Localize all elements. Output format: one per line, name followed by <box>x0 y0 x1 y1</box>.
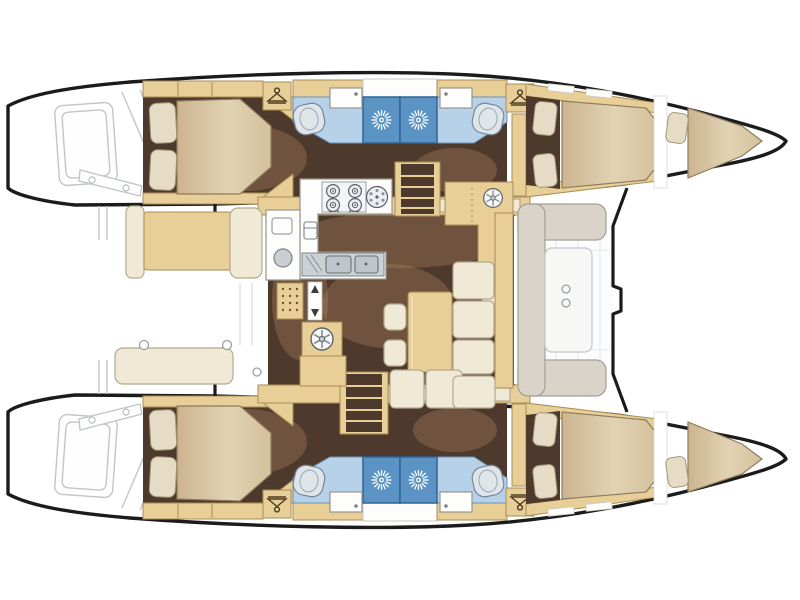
vent-wheel-icon <box>484 189 503 208</box>
stool <box>384 304 406 330</box>
floor-plan-canvas <box>0 0 800 600</box>
washing-machine-icon <box>302 322 342 356</box>
companionway-stairs-top <box>395 162 440 216</box>
round-hob-icon <box>367 187 388 208</box>
cockpit-bench-bottom <box>115 341 261 385</box>
hull-bottom <box>8 395 786 527</box>
cockpit-front-wall <box>613 188 627 412</box>
forward-cockpit <box>514 188 627 412</box>
double-sink-icon <box>302 253 384 276</box>
galley-cabinet <box>300 356 346 386</box>
catamaran-floor-plan <box>0 0 800 600</box>
dinette-table <box>408 292 452 372</box>
dotted-doormat <box>277 283 303 319</box>
stool <box>384 340 406 366</box>
deck-hook <box>140 341 149 350</box>
dinghy-davit-lines <box>99 206 107 394</box>
fridge-icon <box>304 222 317 239</box>
salon <box>258 162 530 434</box>
deck-hook <box>223 341 232 350</box>
cockpit-wet-bar <box>266 210 300 280</box>
deck-hook <box>253 368 261 376</box>
cockpit-bench-top <box>126 206 262 278</box>
companionway-stairs-bottom <box>340 372 388 434</box>
up-down-passage-arrows <box>308 282 322 320</box>
